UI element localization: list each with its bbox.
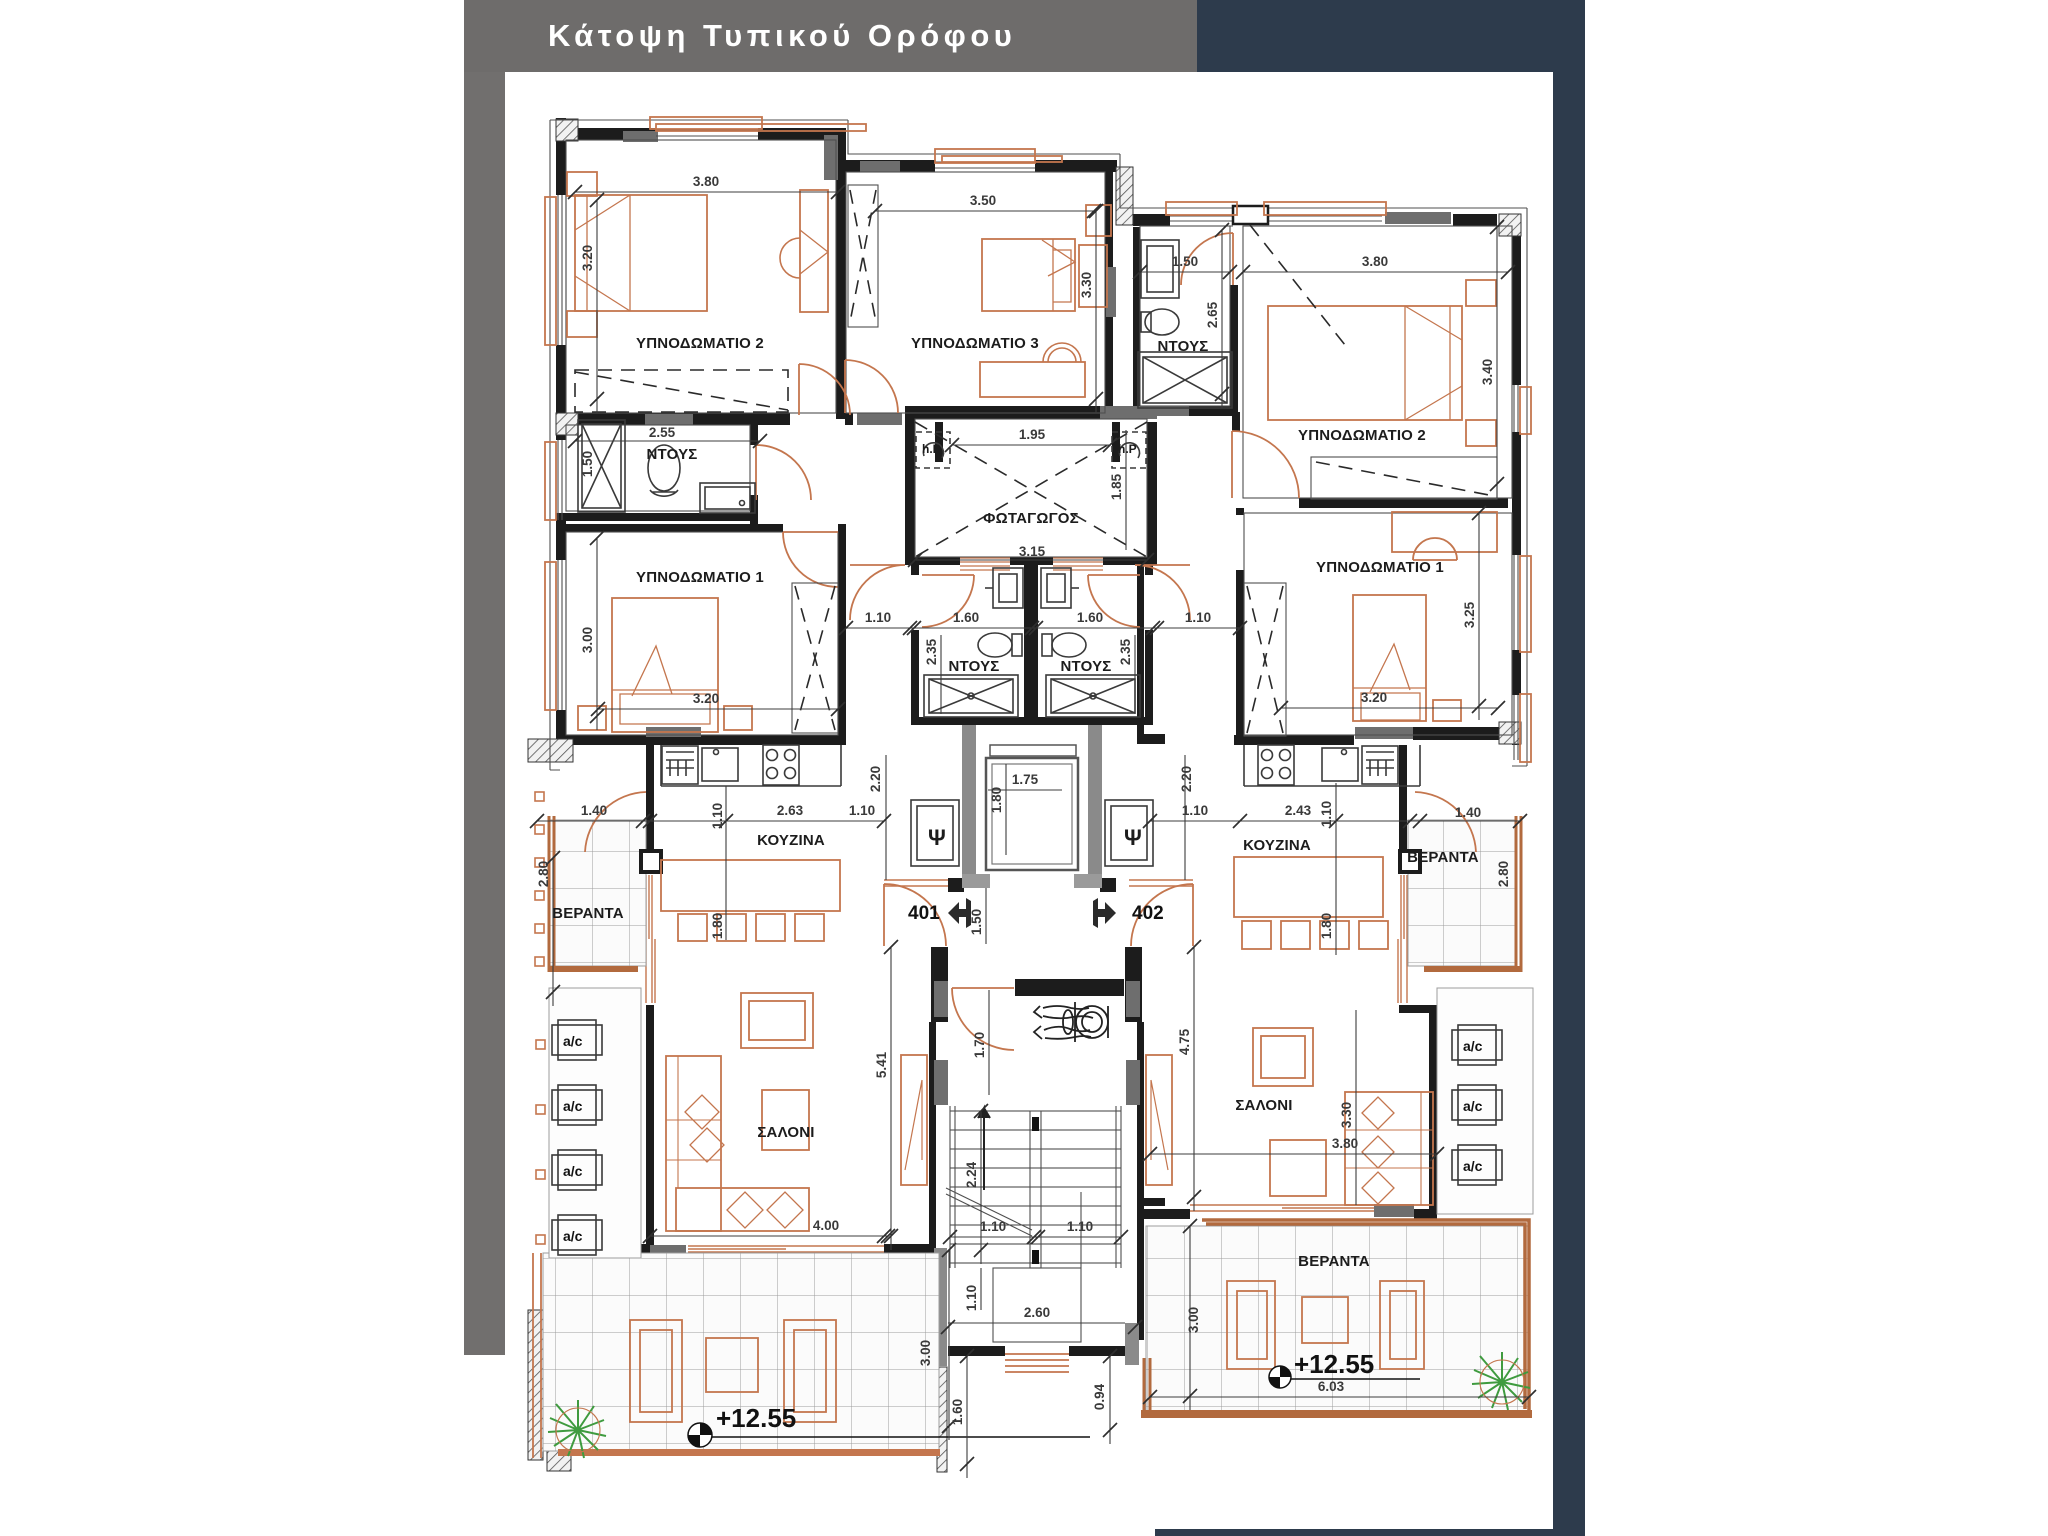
svg-text:1.10: 1.10 bbox=[849, 803, 875, 818]
svg-text:ΣΑΛΟΝΙ: ΣΑΛΟΝΙ bbox=[1235, 1097, 1292, 1114]
svg-text:2.80: 2.80 bbox=[536, 861, 551, 887]
svg-text:2.55: 2.55 bbox=[649, 425, 676, 440]
svg-text:2.20: 2.20 bbox=[868, 766, 883, 792]
svg-text:ΝΤΟΥΣ: ΝΤΟΥΣ bbox=[949, 658, 1000, 675]
svg-text:ΥΠΝΟΔΩΜΑΤΙΟ 2: ΥΠΝΟΔΩΜΑΤΙΟ 2 bbox=[636, 335, 764, 352]
svg-text:1.10: 1.10 bbox=[980, 1219, 1006, 1234]
svg-text:3.30: 3.30 bbox=[1079, 272, 1094, 298]
svg-text:3.20: 3.20 bbox=[1361, 690, 1387, 705]
svg-text:1.10: 1.10 bbox=[1319, 801, 1334, 827]
svg-text:1.10: 1.10 bbox=[1067, 1219, 1093, 1234]
svg-text:1.50: 1.50 bbox=[969, 909, 984, 935]
svg-text:ΥΠΝΟΔΩΜΑΤΙΟ 1: ΥΠΝΟΔΩΜΑΤΙΟ 1 bbox=[636, 569, 764, 586]
svg-text:2.24: 2.24 bbox=[964, 1161, 979, 1188]
svg-text:1.10: 1.10 bbox=[710, 803, 725, 829]
svg-text:ΥΠΝΟΔΩΜΑΤΙΟ 1: ΥΠΝΟΔΩΜΑΤΙΟ 1 bbox=[1316, 559, 1444, 576]
svg-text:Ψ: Ψ bbox=[928, 825, 946, 850]
svg-text:3.15: 3.15 bbox=[1019, 544, 1046, 559]
svg-text:+12.55: +12.55 bbox=[1294, 1349, 1374, 1379]
svg-text:h.P: h.P bbox=[1118, 442, 1137, 456]
svg-text:1.60: 1.60 bbox=[1077, 610, 1103, 625]
svg-text:a/c: a/c bbox=[563, 1033, 583, 1049]
svg-text:2.65: 2.65 bbox=[1205, 301, 1220, 328]
svg-text:ΦΩΤΑΓΩΓΟΣ: ΦΩΤΑΓΩΓΟΣ bbox=[983, 510, 1079, 527]
svg-text:1.10: 1.10 bbox=[1182, 803, 1208, 818]
svg-text:3.00: 3.00 bbox=[580, 627, 595, 653]
svg-text:1.10: 1.10 bbox=[964, 1285, 979, 1311]
svg-text:2.35: 2.35 bbox=[924, 638, 939, 665]
svg-text:3.00: 3.00 bbox=[918, 1340, 933, 1366]
svg-text:1.80: 1.80 bbox=[710, 913, 725, 939]
svg-text:2.35: 2.35 bbox=[1118, 638, 1133, 665]
svg-text:2.43: 2.43 bbox=[1285, 803, 1312, 818]
svg-text:1.75: 1.75 bbox=[1012, 772, 1039, 787]
svg-text:3.30: 3.30 bbox=[1339, 1102, 1354, 1128]
svg-text:0.94: 0.94 bbox=[1092, 1383, 1107, 1410]
svg-text:ΒΕΡΑΝΤΑ: ΒΕΡΑΝΤΑ bbox=[1298, 1253, 1370, 1270]
svg-text:1.10: 1.10 bbox=[1185, 610, 1211, 625]
svg-text:a/c: a/c bbox=[1463, 1098, 1483, 1114]
svg-text:4.75: 4.75 bbox=[1177, 1028, 1192, 1055]
svg-text:1.40: 1.40 bbox=[1455, 805, 1481, 820]
svg-text:5.41: 5.41 bbox=[874, 1051, 889, 1078]
svg-text:402: 402 bbox=[1132, 903, 1164, 924]
svg-text:a/c: a/c bbox=[1463, 1158, 1483, 1174]
svg-text:401: 401 bbox=[908, 903, 940, 924]
svg-text:6.03: 6.03 bbox=[1318, 1379, 1345, 1394]
svg-text:+12.55: +12.55 bbox=[716, 1403, 796, 1433]
svg-text:2.63: 2.63 bbox=[777, 803, 804, 818]
svg-text:Ψ: Ψ bbox=[1124, 825, 1142, 850]
svg-text:1.10: 1.10 bbox=[865, 610, 891, 625]
svg-text:ΒΕΡΑΝΤΑ: ΒΕΡΑΝΤΑ bbox=[1407, 849, 1479, 866]
svg-text:ΚΟΥΖΙΝΑ: ΚΟΥΖΙΝΑ bbox=[1243, 837, 1311, 854]
svg-text:ΥΠΝΟΔΩΜΑΤΙΟ 3: ΥΠΝΟΔΩΜΑΤΙΟ 3 bbox=[911, 335, 1039, 352]
svg-text:2.20: 2.20 bbox=[1179, 766, 1194, 792]
svg-text:a/c: a/c bbox=[1463, 1038, 1483, 1054]
svg-text:1.95: 1.95 bbox=[1019, 427, 1046, 442]
svg-text:ΒΕΡΑΝΤΑ: ΒΕΡΑΝΤΑ bbox=[552, 905, 624, 922]
svg-text:1.85: 1.85 bbox=[1109, 473, 1124, 500]
svg-text:3.80: 3.80 bbox=[1362, 254, 1388, 269]
svg-text:h.P: h.P bbox=[922, 442, 941, 456]
svg-text:1.60: 1.60 bbox=[953, 610, 979, 625]
svg-text:1.80: 1.80 bbox=[989, 787, 1004, 813]
svg-text:a/c: a/c bbox=[563, 1228, 583, 1244]
svg-text:ΥΠΝΟΔΩΜΑΤΙΟ 2: ΥΠΝΟΔΩΜΑΤΙΟ 2 bbox=[1298, 427, 1426, 444]
svg-text:1.40: 1.40 bbox=[581, 803, 607, 818]
svg-text:3.50: 3.50 bbox=[970, 193, 996, 208]
svg-text:3.20: 3.20 bbox=[580, 245, 595, 271]
svg-text:3.00: 3.00 bbox=[1186, 1307, 1201, 1333]
svg-text:a/c: a/c bbox=[563, 1098, 583, 1114]
svg-text:3.80: 3.80 bbox=[693, 174, 719, 189]
svg-text:ΝΤΟΥΣ: ΝΤΟΥΣ bbox=[647, 446, 698, 463]
svg-text:3.20: 3.20 bbox=[693, 691, 719, 706]
svg-text:3.25: 3.25 bbox=[1462, 601, 1477, 628]
svg-text:Κάτοψη Τυπικού Ορόφου: Κάτοψη Τυπικού Ορόφου bbox=[548, 18, 1016, 53]
svg-text:4.00: 4.00 bbox=[813, 1218, 839, 1233]
svg-text:1.80: 1.80 bbox=[1319, 913, 1334, 939]
svg-text:3.40: 3.40 bbox=[1480, 359, 1495, 385]
svg-text:ΚΟΥΖΙΝΑ: ΚΟΥΖΙΝΑ bbox=[757, 832, 825, 849]
svg-text:1.60: 1.60 bbox=[950, 1399, 965, 1425]
svg-text:2.60: 2.60 bbox=[1024, 1305, 1050, 1320]
svg-text:1.50: 1.50 bbox=[1172, 254, 1198, 269]
svg-text:1.50: 1.50 bbox=[580, 451, 595, 477]
svg-text:ΝΤΟΥΣ: ΝΤΟΥΣ bbox=[1158, 338, 1209, 355]
svg-text:3.80: 3.80 bbox=[1332, 1136, 1358, 1151]
svg-text:1.70: 1.70 bbox=[972, 1032, 987, 1058]
svg-text:a/c: a/c bbox=[563, 1163, 583, 1179]
svg-text:ΣΑΛΟΝΙ: ΣΑΛΟΝΙ bbox=[757, 1124, 814, 1141]
svg-text:ΝΤΟΥΣ: ΝΤΟΥΣ bbox=[1061, 658, 1112, 675]
svg-text:2.80: 2.80 bbox=[1496, 861, 1511, 887]
